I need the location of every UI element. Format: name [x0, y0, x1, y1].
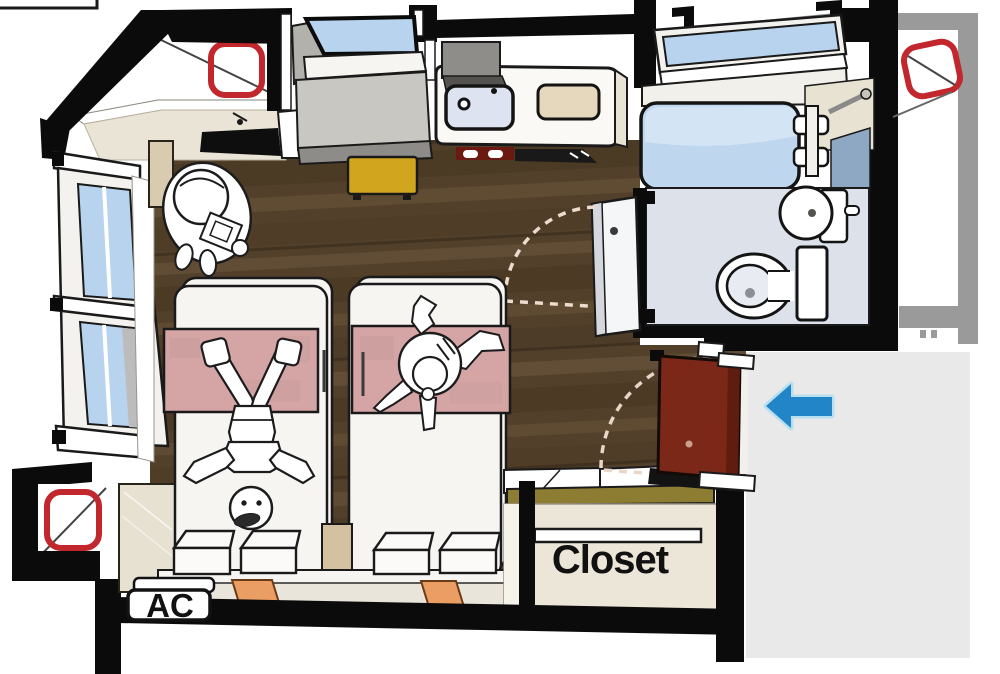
svg-text:AC: AC [146, 587, 194, 624]
svg-text:Closet: Closet [552, 538, 669, 582]
